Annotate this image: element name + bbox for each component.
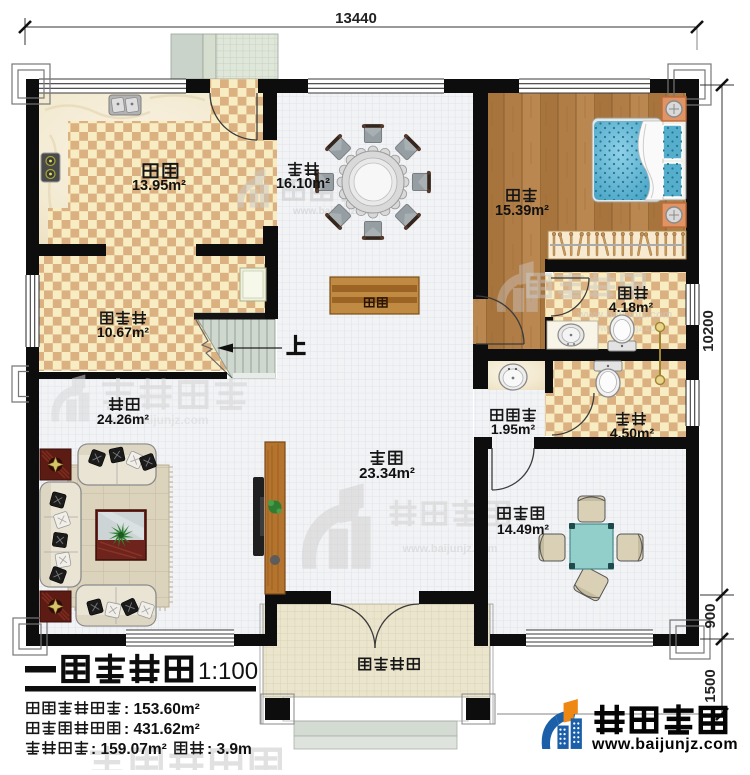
svg-text:4.18m²: 4.18m²: [609, 299, 654, 315]
svg-text:13.95m²: 13.95m²: [132, 178, 186, 194]
svg-text:: 159.07m²: : 159.07m²: [91, 741, 167, 758]
svg-text:15.39m²: 15.39m²: [495, 203, 549, 219]
svg-text:www.baijunjz.com: www.baijunjz.com: [591, 736, 738, 753]
svg-text:16.10m²: 16.10m²: [276, 176, 330, 192]
svg-text:10.67m²: 10.67m²: [97, 324, 149, 340]
svg-text:23.34m²: 23.34m²: [359, 465, 415, 482]
svg-text:: 3.9m: : 3.9m: [207, 741, 252, 758]
svg-text:4.50m²: 4.50m²: [610, 425, 655, 441]
svg-text:1500: 1500: [702, 669, 719, 702]
svg-text:10200: 10200: [700, 310, 717, 352]
svg-text:1.95m²: 1.95m²: [491, 421, 536, 437]
svg-text:1:100: 1:100: [198, 658, 258, 685]
svg-text:: 153.60m²: : 153.60m²: [124, 701, 200, 718]
svg-text:900: 900: [702, 603, 719, 628]
svg-text:24.26m²: 24.26m²: [97, 411, 149, 427]
svg-text:: 431.62m²: : 431.62m²: [124, 721, 200, 738]
svg-text:13440: 13440: [335, 10, 377, 27]
svg-text:14.49m²: 14.49m²: [497, 521, 549, 537]
